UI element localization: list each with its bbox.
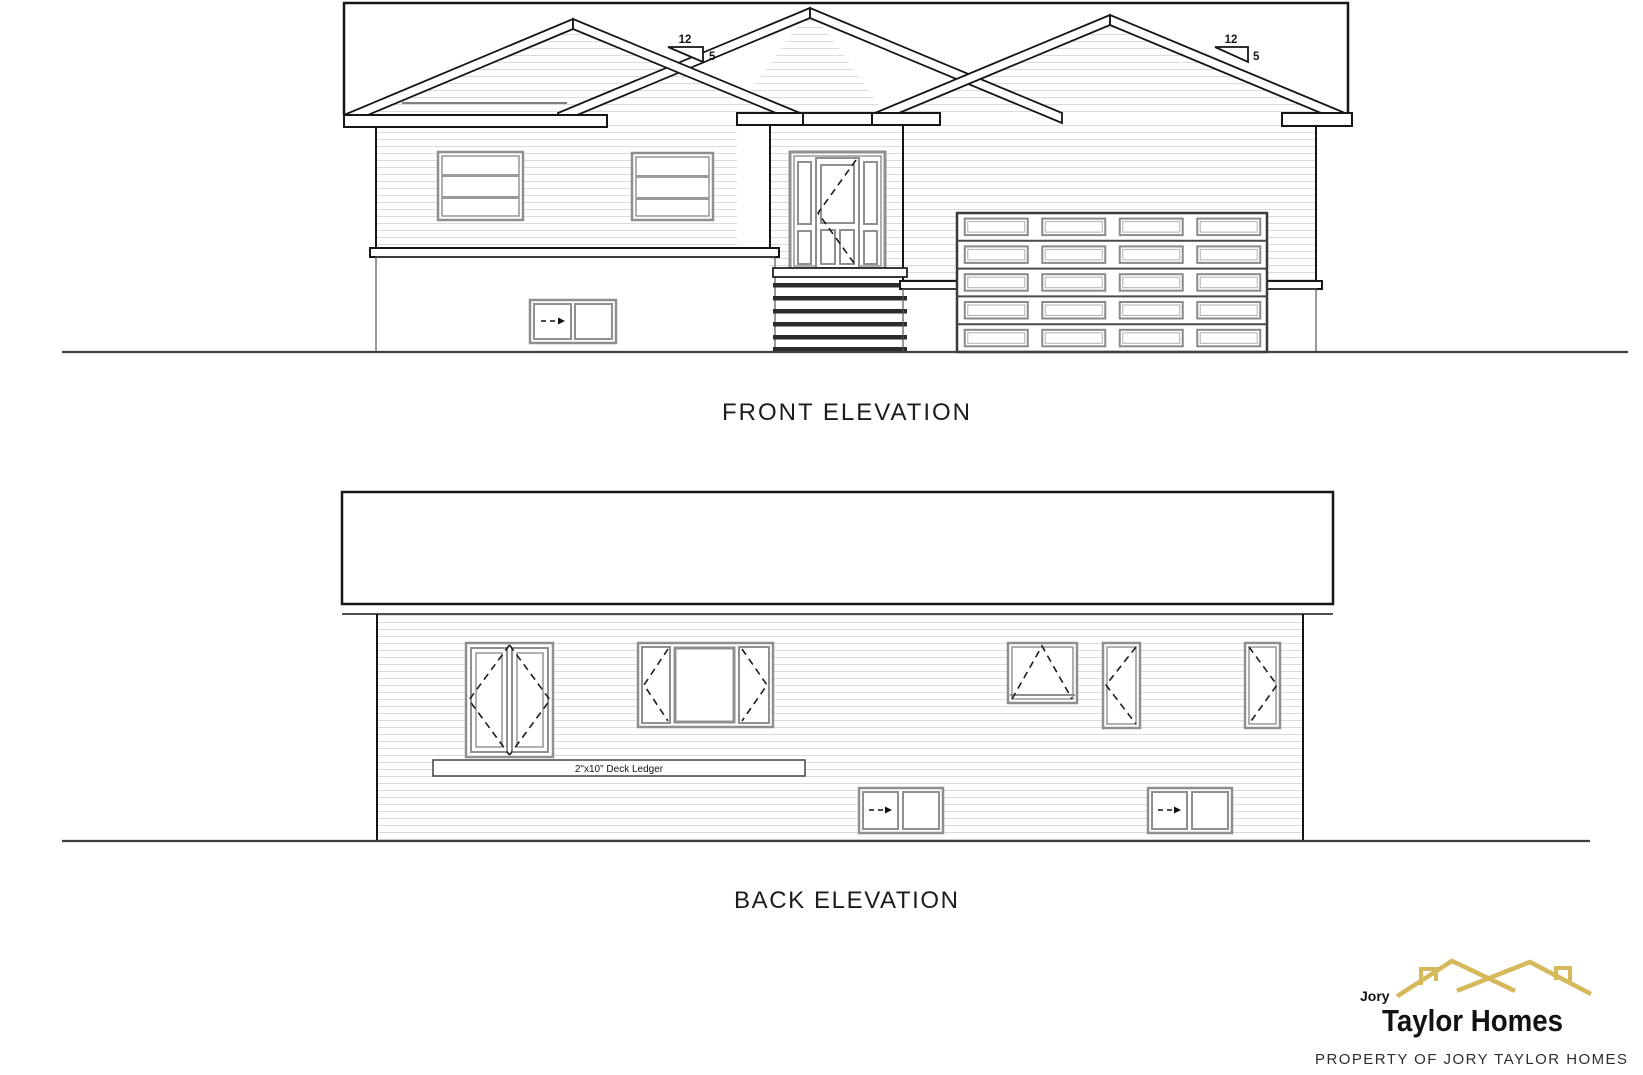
entry-door [790,152,885,270]
deck-ledger-label: 2"x10" Deck Ledger [575,764,664,775]
awning-window [1008,643,1077,703]
basement-window-front [530,300,616,343]
pitch-run-label: 5 [709,51,716,63]
pitch-rise-label: 12 [679,34,692,46]
logo-jory-text: Jory [1360,988,1390,1004]
back-elevation-drawing: 2"x10" Deck Ledger BACK ELEVATION [62,492,1590,914]
basement-window-back-left [859,788,943,833]
patio-door [466,643,553,757]
pitch-marker-right: 12 5 [1215,34,1260,63]
triple-window [638,643,773,727]
logo-taylor-homes-text: Taylor Homes [1382,1003,1563,1038]
back-elevation-title: BACK ELEVATION [734,887,958,914]
elevation-sheet: 12 5 12 5 [0,0,1643,1075]
basement-window-back-right [1148,788,1232,833]
pitch-run-label: 5 [1253,51,1260,63]
rooftops-icon [1399,961,1589,995]
front-elevation-title: FRONT ELEVATION [722,399,970,426]
front-steps [773,268,907,351]
casement-window-mid [1103,643,1140,728]
back-roof-band [342,492,1333,604]
front-elevation-drawing: 12 5 12 5 [62,3,1628,426]
upper-window-right [632,153,713,220]
casement-window-right [1245,643,1280,728]
stone-pier-garage-left [900,281,961,352]
left-gable-face [344,19,800,115]
elevation-drawing-canvas: 12 5 12 5 [0,0,1643,1075]
property-notice: PROPERTY OF JORY TAYLOR HOMES [1315,1051,1627,1068]
garage-door [957,213,1267,352]
brand-logo: Jory Taylor Homes [1360,961,1589,1038]
pitch-rise-label: 12 [1225,34,1238,46]
upper-window-left [438,152,523,220]
deck-ledger: 2"x10" Deck Ledger [433,760,805,776]
eave-fascia [344,113,1352,127]
stone-pier-garage-right [1264,281,1322,352]
